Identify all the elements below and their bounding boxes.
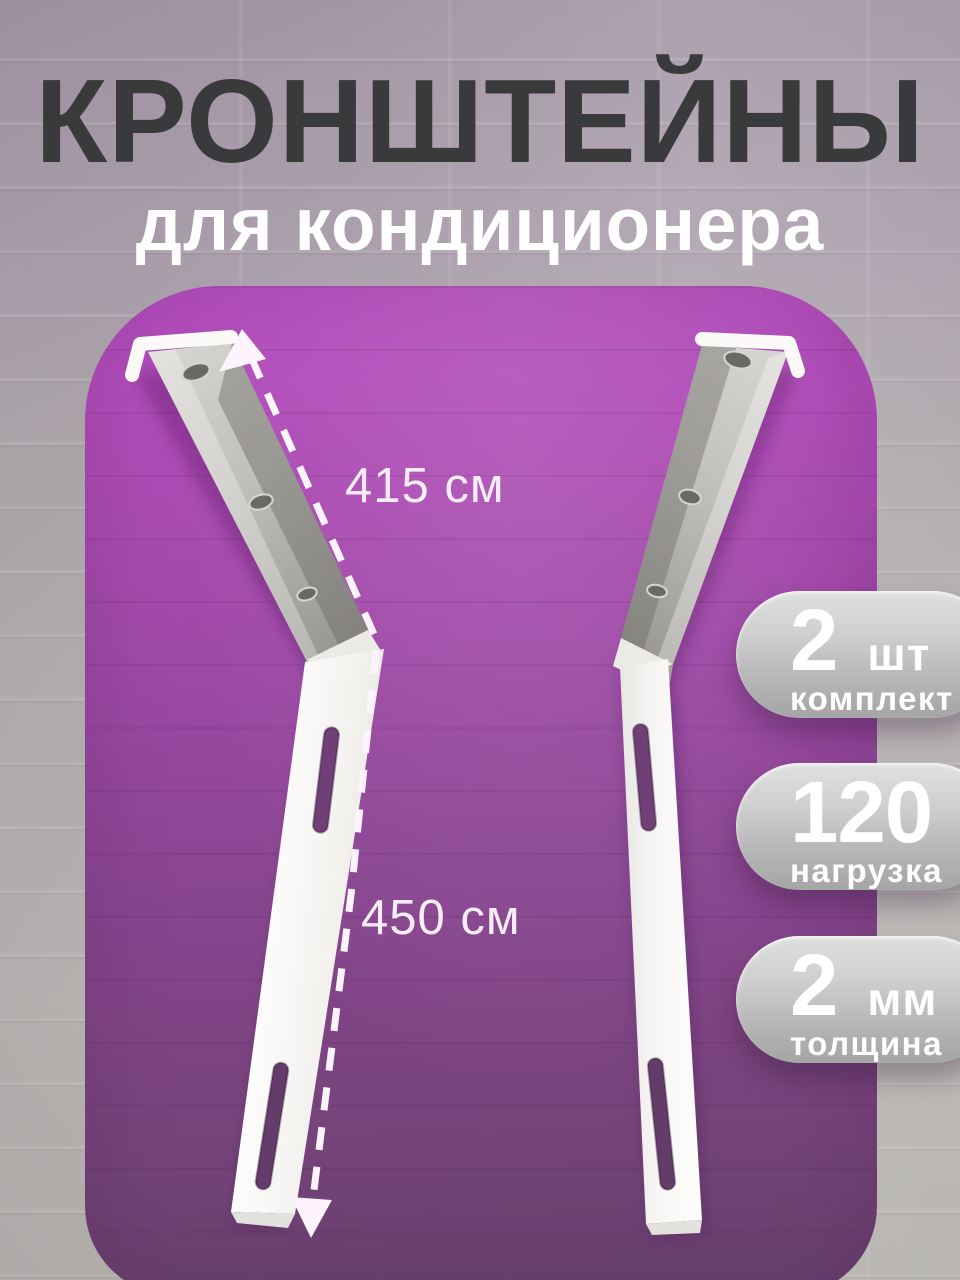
- badge-thickness: 2 мм толщина: [736, 936, 960, 1063]
- page-subtitle: для кондиционера: [14, 187, 945, 262]
- badge-quantity: 2 шт комплект: [736, 591, 960, 718]
- badge-quantity-label: комплект: [790, 682, 960, 715]
- badge-thickness-label: толщина: [790, 1027, 960, 1060]
- badge-load-label: нагрузка: [790, 854, 960, 887]
- badge-quantity-unit: шт: [867, 627, 930, 681]
- badge-thickness-value: 2: [790, 946, 837, 1026]
- measurement-label-upper: 415 см: [345, 458, 505, 514]
- title-block: КРОНШТЕЙНЫ для кондиционера: [0, 62, 960, 262]
- product-banner: КРОНШТЕЙНЫ для кондиционера: [0, 0, 960, 1280]
- badge-thickness-unit: мм: [867, 972, 937, 1026]
- badge-load: 120 кг нагрузка: [736, 763, 960, 890]
- measurement-label-lower: 450 см: [361, 890, 521, 946]
- page-title: КРОНШТЕЙНЫ: [5, 62, 955, 181]
- badge-load-value: 120: [790, 773, 932, 853]
- badge-quantity-value: 2: [790, 601, 837, 681]
